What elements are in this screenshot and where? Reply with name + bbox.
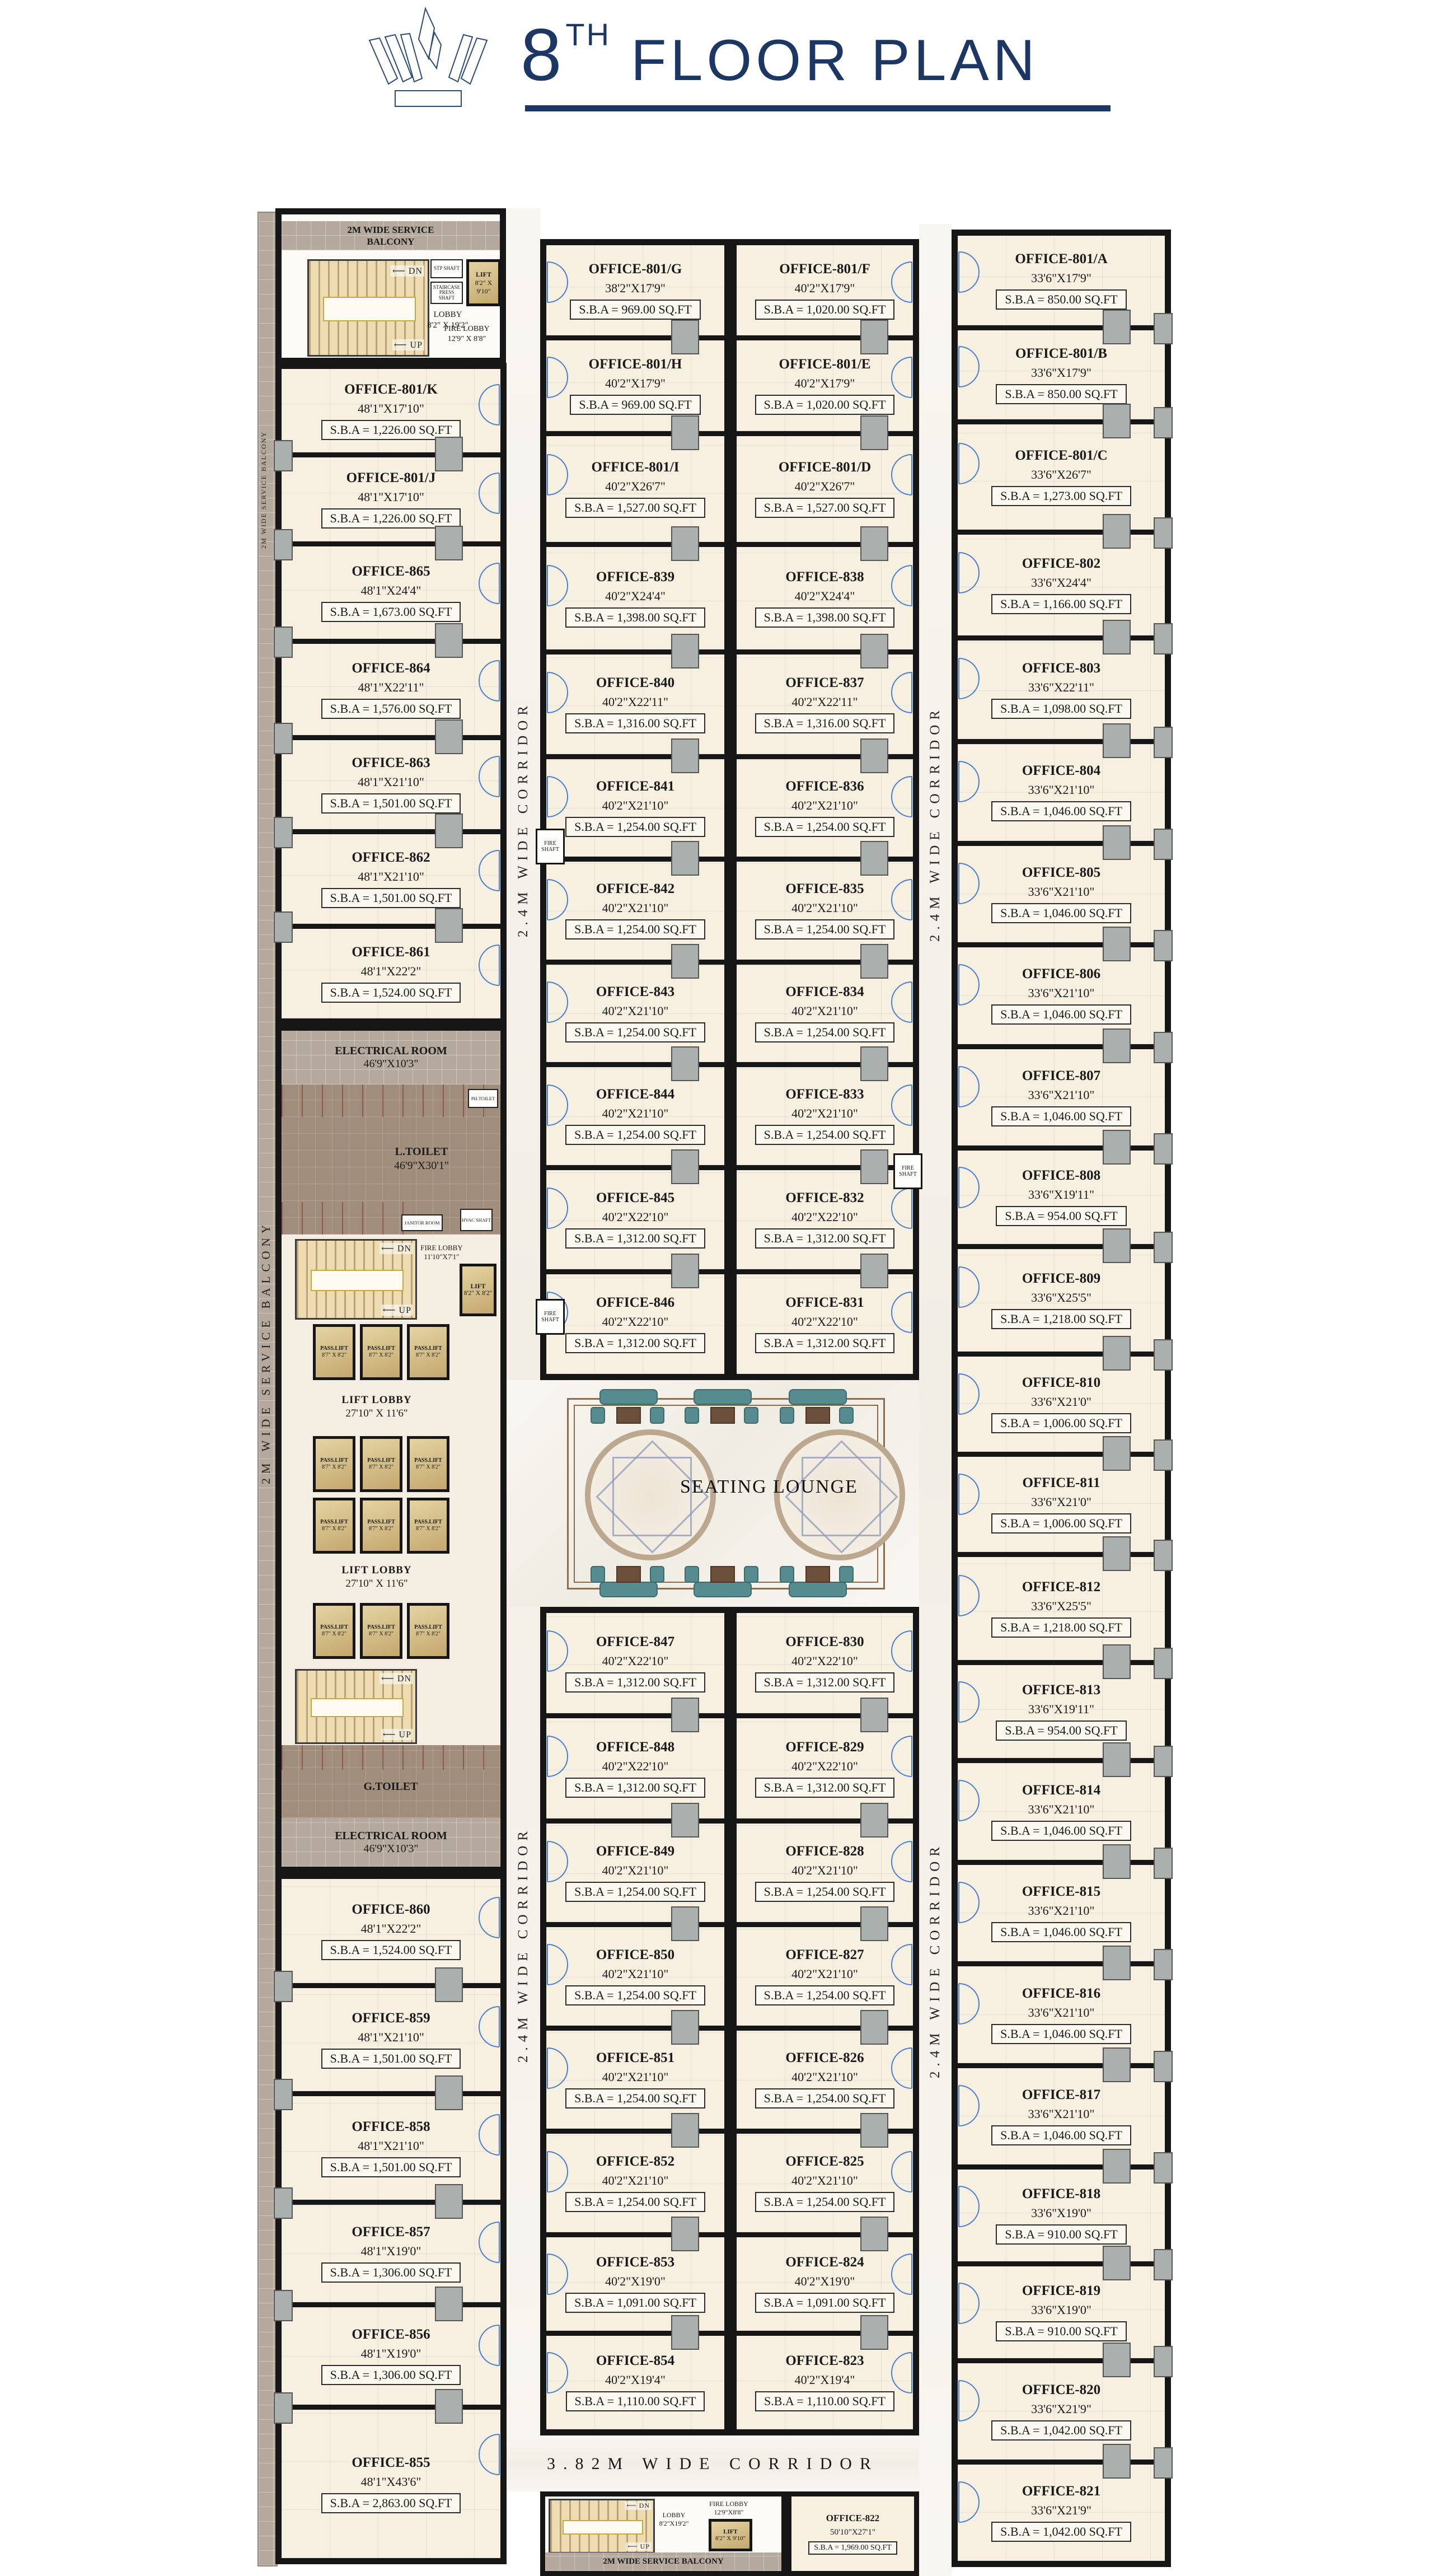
- sofa-cluster: [591, 1389, 664, 1438]
- office-sba: S.B.A = 1,254.00 SQ.FT: [755, 2088, 895, 2109]
- lobby-text: LOBBY: [423, 310, 473, 320]
- office-name: OFFICE-815: [1022, 1884, 1100, 1900]
- office-sba: S.B.A = 1,254.00 SQ.FT: [565, 2088, 705, 2109]
- office-dims: 40'2"X22'11": [792, 695, 858, 709]
- door-icon: [544, 2148, 568, 2196]
- pass-lift-label: PASS.LIFT: [320, 1624, 348, 1631]
- office-cell-office-801-f: OFFICE-801/F40'2"X17'9"S.B.A = 1,020.00 …: [737, 245, 913, 340]
- door-icon: [955, 1470, 980, 1518]
- office-sba: S.B.A = 1,306.00 SQ.FT: [321, 2262, 461, 2283]
- office-name: OFFICE-844: [596, 1087, 674, 1102]
- door-icon: [955, 2478, 980, 2526]
- door-icon: [955, 1263, 980, 1311]
- outer-wall-pier: [1154, 1133, 1173, 1165]
- office-sba: S.B.A = 1,316.00 SQ.FT: [565, 713, 705, 733]
- office-sba: S.B.A = 2,863.00 SQ.FT: [321, 2493, 461, 2513]
- top-service-balcony-label: 2M WIDE SERVICE BALCONY: [324, 224, 458, 248]
- office-sba: S.B.A = 1,046.00 SQ.FT: [991, 1106, 1131, 1126]
- pass-lift-label: PASS.LIFT: [414, 1624, 442, 1631]
- office-cell-office-801-e: OFFICE-801/E40'2"X17'9"S.B.A = 1,020.00 …: [737, 340, 913, 436]
- pass-lift-dims: 8'7" X 8'2": [322, 1464, 346, 1471]
- door-icon: [479, 657, 503, 705]
- office-sba: S.B.A = 1,254.00 SQ.FT: [565, 1022, 705, 1042]
- pass-lift: PASS.LIFT8'7" X 8'2": [360, 1324, 402, 1380]
- door-icon: [891, 668, 916, 717]
- wall-pier: [1103, 2149, 1131, 2184]
- wall-pier: [671, 2315, 699, 2350]
- pass-lift-dims: 8'7" X 8'2": [369, 1631, 393, 1638]
- wall-pier: [1103, 310, 1131, 344]
- office-cell-office-856: OFFICE-85648'1"X19'0"S.B.A = 1,306.00 SQ…: [282, 2307, 500, 2410]
- office-dims: 33'6"X25'5": [1031, 1291, 1091, 1305]
- office-dims: 48'1"X22'2": [361, 1922, 421, 1936]
- office-sba: S.B.A = 1,166.00 SQ.FT: [991, 594, 1131, 614]
- office-name: OFFICE-819: [1022, 2283, 1100, 2299]
- office-cell-office-847: OFFICE-84740'2"X22'10"S.B.A = 1,312.00 S…: [546, 1613, 724, 1718]
- wall-pier: [860, 944, 888, 979]
- armchair: [685, 1566, 699, 1583]
- pass-lift-row-lower: PASS.LIFT8'7" X 8'2"PASS.LIFT8'7" X 8'2"…: [313, 1603, 451, 1662]
- office-name: OFFICE-840: [596, 675, 674, 691]
- office-sba: S.B.A = 1,254.00 SQ.FT: [755, 1985, 895, 2005]
- armchair: [780, 1566, 794, 1583]
- office-cell-office-852: OFFICE-85240'2"X21'10"S.B.A = 1,254.00 S…: [546, 2134, 724, 2237]
- office-cell-office-801-a: OFFICE-801/A33'6"X17'9"S.B.A = 850.00 SQ…: [958, 236, 1165, 330]
- wall-pier: [860, 841, 888, 876]
- pass-lift-dims: 8'7" X 8'2": [416, 1631, 441, 1638]
- title-floor-suffix: TH: [565, 17, 611, 52]
- office-cell-office-849: OFFICE-84940'2"X21'10"S.B.A = 1,254.00 S…: [546, 1824, 724, 1927]
- office-dims: 33'6"X21'0": [1031, 1495, 1091, 1509]
- office-name: OFFICE-825: [785, 2154, 864, 2170]
- door-icon: [955, 1980, 980, 2028]
- office-sba: S.B.A = 1,501.00 SQ.FT: [321, 2049, 461, 2069]
- door-icon: [955, 1063, 980, 1111]
- office-sba: S.B.A = 1,254.00 SQ.FT: [565, 817, 705, 837]
- office-dims: 48'1"X24'4": [361, 583, 421, 598]
- door-icon: [479, 847, 503, 895]
- door-icon: [891, 353, 916, 401]
- wall-pier: [860, 1254, 888, 1288]
- door-icon: [891, 1732, 916, 1780]
- wall-pier: [1103, 1436, 1131, 1471]
- office-cell-office-835: OFFICE-83540'2"X21'10"S.B.A = 1,254.00 S…: [737, 862, 913, 964]
- office-name: OFFICE-836: [785, 779, 864, 794]
- office-name: OFFICE-858: [352, 2119, 430, 2135]
- fire-lobby-label-bottom: FIRE LOBBY 12'9"X8'8": [695, 2500, 762, 2517]
- office-cell-office-805: OFFICE-80533'6"X21'10"S.B.A = 1,046.00 S…: [958, 846, 1165, 948]
- office-dims: 33'6"X21'10": [1028, 2005, 1095, 2020]
- outer-wall-pier: [274, 2392, 293, 2424]
- office-cell-office-862: OFFICE-86248'1"X21'10"S.B.A = 1,501.00 S…: [282, 834, 500, 928]
- pass-lift-dims: 8'7" X 8'2": [322, 1631, 346, 1638]
- lift-dims: 8'2" X 9'10": [469, 279, 498, 296]
- office-dims: 33'6"X21'10": [1028, 2107, 1095, 2121]
- seating-lounge-label: SEATING LOUNGE: [680, 1476, 858, 1498]
- office-cell-office-816: OFFICE-81633'6"X21'10"S.B.A = 1,046.00 S…: [958, 1966, 1165, 2068]
- wall-pier: [1103, 2343, 1131, 2377]
- office-dims: 33'6"X26'7": [1031, 467, 1091, 482]
- pass-lift: PASS.LIFT8'7" X 8'2": [360, 1498, 402, 1554]
- outer-wall-pier: [1154, 1032, 1173, 1063]
- outer-wall-pier: [1154, 623, 1173, 654]
- pass-lift: PASS.LIFT8'7" X 8'2": [407, 1324, 449, 1380]
- fire-shaft-box-2: FIRE SHAFT: [536, 1299, 565, 1335]
- pass-lift-dims: 8'7" X 8'2": [416, 1526, 441, 1532]
- door-icon: [891, 2250, 916, 2298]
- door-icon: [479, 381, 503, 429]
- office-sba: S.B.A = 1,312.00 SQ.FT: [755, 1333, 895, 1353]
- office-name: OFFICE-801/B: [1015, 346, 1107, 362]
- office-sba: S.B.A = 1,312.00 SQ.FT: [755, 1228, 895, 1249]
- office-dims: 33'6"X25'5": [1031, 1599, 1091, 1614]
- sofa-cluster: [591, 1548, 664, 1597]
- office-sba: S.B.A = 1,042.00 SQ.FT: [991, 2420, 1131, 2441]
- bottom-service-balcony-label: 2M WIDE SERVICE BALCONY: [603, 2557, 723, 2566]
- wall-pier: [671, 1803, 699, 1838]
- office-dims: 40'2"X21'10": [791, 2070, 858, 2084]
- coffee-table: [805, 1566, 830, 1583]
- outer-wall-pier: [274, 440, 293, 471]
- outer-wall-pier: [1154, 1949, 1173, 1980]
- office-cell-office-801-b: OFFICE-801/B33'6"X17'9"S.B.A = 850.00 SQ…: [958, 330, 1165, 425]
- office-sba: S.B.A = 1,254.00 SQ.FT: [755, 1022, 895, 1042]
- door-icon: [479, 2430, 503, 2479]
- office-dims: 33'6"X21'0": [1031, 1395, 1091, 1409]
- office-dims: 48'1"X17'10": [358, 401, 424, 416]
- office-name: OFFICE-823: [785, 2353, 864, 2369]
- outer-wall-pier: [1154, 407, 1173, 438]
- seating-lounge: SEATING LOUNGE: [507, 1380, 919, 1607]
- office-cell-office-833: OFFICE-83340'2"X21'10"S.B.A = 1,254.00 S…: [737, 1067, 913, 1170]
- door-icon: [544, 1732, 568, 1780]
- door-icon: [891, 2044, 916, 2092]
- office-cell-office-850: OFFICE-85040'2"X21'10"S.B.A = 1,254.00 S…: [546, 1927, 724, 2031]
- door-icon: [479, 752, 503, 801]
- left-corridor-label-top: 2.4M WIDE CORRIDOR: [516, 701, 531, 937]
- office-name: OFFICE-833: [785, 1087, 864, 1102]
- door-icon: [891, 1941, 916, 1989]
- office-cell-office-812: OFFICE-81233'6"X25'5"S.B.A = 1,218.00 SQ…: [958, 1557, 1165, 1665]
- pass-lift-label: PASS.LIFT: [414, 1457, 442, 1464]
- office-cell-office-838: OFFICE-83840'2"X24'4"S.B.A = 1,398.00 SQ…: [737, 547, 913, 654]
- office-column-mid_right_top: OFFICE-801/F40'2"X17'9"S.B.A = 1,020.00 …: [730, 239, 919, 1380]
- office-dims: 40'2"X22'10": [791, 1315, 858, 1329]
- office-sba: S.B.A = 1,306.00 SQ.FT: [321, 2365, 461, 2385]
- office-dims: 33'6"X24'4": [1031, 576, 1091, 590]
- stair-landing: [323, 297, 415, 321]
- office-cell-office-844: OFFICE-84440'2"X21'10"S.B.A = 1,254.00 S…: [546, 1067, 724, 1170]
- office-cell-office-804: OFFICE-80433'6"X21'10"S.B.A = 1,046.00 S…: [958, 744, 1165, 846]
- office-cell-office-814: OFFICE-81433'6"X21'10"S.B.A = 1,046.00 S…: [958, 1763, 1165, 1865]
- lift-top: LIFT 8'2" X 9'10": [466, 259, 501, 306]
- office-name: OFFICE-829: [785, 1740, 864, 1755]
- pass-lift-label: PASS.LIFT: [320, 1345, 348, 1352]
- office-sba: S.B.A = 1,254.00 SQ.FT: [755, 1882, 895, 1902]
- office-sba: S.B.A = 1,501.00 SQ.FT: [321, 793, 461, 814]
- left-corridor-label-bottom: 2.4M WIDE CORRIDOR: [516, 1826, 531, 2063]
- staircase-press-shaft: STAIRCASE PRESS SHAFT: [430, 282, 463, 304]
- office-column-left_top: OFFICE-801/K48'1"X17'10"S.B.A = 1,226.00…: [275, 363, 507, 1025]
- office-dims: 40'2"X22'10": [602, 1759, 669, 1774]
- office-dims: 40'2"X17'9": [795, 281, 855, 296]
- door-icon: [544, 668, 568, 717]
- bottom-core: ⟵ DN ⟵ UP LOBBY 8'2"X19'2" FIRE LOBBY 12…: [540, 2491, 786, 2576]
- office-sba: S.B.A = 1,091.00 SQ.FT: [565, 2293, 705, 2313]
- pass-lift: PASS.LIFT8'7" X 8'2": [407, 1603, 449, 1659]
- door-icon: [955, 961, 980, 1009]
- office-sba: S.B.A = 1,006.00 SQ.FT: [991, 1513, 1131, 1534]
- wall-pier: [1103, 1644, 1131, 1679]
- office-cell-office-837: OFFICE-83740'2"X22'11"S.B.A = 1,316.00 S…: [737, 654, 913, 759]
- wall-pier: [1103, 404, 1131, 438]
- wall-pier: [860, 2010, 888, 2045]
- office-sba: S.B.A = 1,969.00 SQ.FT: [808, 2541, 897, 2555]
- outer-wall-pier: [1154, 2346, 1173, 2377]
- wall-pier: [1103, 1336, 1131, 1371]
- office-cell-office-848: OFFICE-84840'2"X22'10"S.B.A = 1,312.00 S…: [546, 1718, 724, 1824]
- service-balcony-label-left-vertical: 2M WIDE SERVICE BALCONY: [259, 1221, 273, 1484]
- pass-lift-label: PASS.LIFT: [367, 1519, 395, 1526]
- wall-pier: [671, 320, 699, 354]
- office-sba: S.B.A = 1,316.00 SQ.FT: [755, 713, 895, 733]
- office-sba: S.B.A = 1,312.00 SQ.FT: [565, 1778, 705, 1798]
- office-dims: 40'2"X22'10": [602, 1210, 669, 1224]
- office-dims: 40'2"X21'10": [602, 1106, 669, 1121]
- bottom-corridor: 3.82M WIDE CORRIDOR: [507, 2435, 919, 2491]
- office-cell-office-846: OFFICE-84640'2"X22'10"S.B.A = 1,312.00 S…: [546, 1274, 724, 1374]
- office-name: OFFICE-809: [1022, 1271, 1100, 1287]
- wall-pier: [860, 2217, 888, 2251]
- wall-pier: [671, 1254, 699, 1288]
- office-cell-office-861: OFFICE-86148'1"X22'2"S.B.A = 1,524.00 SQ…: [282, 929, 500, 1018]
- wall-pier: [1103, 514, 1131, 549]
- office-name: OFFICE-807: [1022, 1068, 1100, 1084]
- wall-pier: [671, 2113, 699, 2148]
- pass-lift-dims: 8'7" X 8'2": [322, 1526, 346, 1532]
- office-dims: 33'6"X17'9": [1031, 271, 1091, 286]
- office-name: OFFICE-846: [596, 1295, 674, 1311]
- right-corridor: 2.4M WIDE CORRIDOR 2.4M WIDE CORRIDOR FI…: [919, 224, 952, 2576]
- office-dims: 40'2"X26'7": [795, 479, 855, 494]
- office-name: OFFICE-801/I: [592, 460, 680, 475]
- door-icon: [891, 1288, 916, 1336]
- pass-lift-dims: 8'7" X 8'2": [416, 1464, 441, 1471]
- ladies-toilet-label: L.TOILET 46'9"X30'1": [366, 1145, 477, 1173]
- outer-wall-pier: [1154, 930, 1173, 961]
- core-stair-row-upper: ⟵ DN ⟵ UP FIRE LOBBY 11'10"X7'1" LIFT 8'…: [282, 1235, 500, 1322]
- office-cell-office-801-i: OFFICE-801/I40'2"X26'7"S.B.A = 1,527.00 …: [546, 436, 724, 548]
- door-icon: [955, 1370, 980, 1418]
- office-sba: S.B.A = 954.00 SQ.FT: [996, 1206, 1126, 1226]
- office-dims: 40'2"X22'10": [791, 1759, 858, 1774]
- office-cell-office-801-d: OFFICE-801/D40'2"X26'7"S.B.A = 1,527.00 …: [737, 436, 913, 548]
- office-cell-office-830: OFFICE-83040'2"X22'10"S.B.A = 1,312.00 S…: [737, 1613, 913, 1718]
- armchair: [591, 1407, 605, 1424]
- wall-pier: [860, 526, 888, 561]
- office-name: OFFICE-828: [785, 1844, 864, 1859]
- pass-lift-label: PASS.LIFT: [320, 1457, 348, 1464]
- door-icon: [891, 2349, 916, 2397]
- outer-wall-pier: [274, 911, 293, 943]
- right-corridor-label-bottom: 2.4M WIDE CORRIDOR: [927, 1842, 943, 2078]
- door-icon: [479, 941, 503, 989]
- office-sba: S.B.A = 1,673.00 SQ.FT: [321, 602, 461, 622]
- coffee-table: [710, 1566, 735, 1583]
- office-sba: S.B.A = 1,006.00 SQ.FT: [991, 1413, 1131, 1433]
- lobby-label-bottom: LOBBY 8'2"X19'2": [653, 2511, 695, 2528]
- office-name: OFFICE-837: [785, 675, 864, 691]
- office-cell-office-857: OFFICE-85748'1"X19'0"S.B.A = 1,306.00 SQ…: [282, 2205, 500, 2307]
- gents-toilet: G.TOILET: [282, 1745, 500, 1818]
- outer-wall-pier: [274, 723, 293, 754]
- office-sba: S.B.A = 1,046.00 SQ.FT: [991, 903, 1131, 923]
- office-name: OFFICE-801/C: [1015, 448, 1107, 464]
- office-name: OFFICE-831: [785, 1295, 864, 1311]
- office-name: OFFICE-861: [352, 945, 430, 960]
- door-icon: [955, 859, 980, 908]
- office-column-left_bottom: OFFICE-86048'1"X22'2"S.B.A = 1,524.00 SQ…: [275, 1873, 507, 2564]
- wall-pier: [860, 1149, 888, 1184]
- wall-pier: [435, 719, 463, 754]
- office-name: OFFICE-801/F: [779, 261, 870, 277]
- stairs-up-label: ⟵ UP: [392, 339, 424, 350]
- office-name: OFFICE-816: [1022, 1986, 1100, 2002]
- pass-lift: PASS.LIFT8'7" X 8'2": [313, 1498, 355, 1554]
- outer-wall-pier: [1154, 1232, 1173, 1263]
- office-dims: 40'2"X21'10": [602, 798, 669, 813]
- outer-wall-pier: [1154, 829, 1173, 860]
- office-sba: S.B.A = 1,046.00 SQ.FT: [991, 1821, 1131, 1841]
- fire-lobby-label-mid: FIRE LOBBY 11'10"X7'1": [416, 1243, 467, 1262]
- pass-lift-dims: 8'7" X 8'2": [369, 1464, 393, 1471]
- wall-pier: [1103, 723, 1131, 758]
- fire-lobby-dims: 12'9" X 8'8": [432, 334, 502, 344]
- office-name: OFFICE-859: [352, 2011, 430, 2026]
- fire-shaft-box-1: FIRE SHAFT: [536, 829, 565, 864]
- office-name: OFFICE-824: [785, 2255, 864, 2270]
- office-name: OFFICE-801/G: [589, 261, 682, 277]
- door-icon: [544, 1184, 568, 1232]
- wall-pier: [671, 526, 699, 561]
- outer-wall-pier: [1154, 2447, 1173, 2479]
- door-icon: [544, 1627, 568, 1675]
- office-dims: 33'6"X21'10": [1028, 1904, 1095, 1918]
- office-cell-office-855: OFFICE-85548'1"X43'6"S.B.A = 2,863.00 SQ…: [282, 2410, 500, 2558]
- office-sba: S.B.A = 1,501.00 SQ.FT: [321, 888, 461, 908]
- office-name: OFFICE-806: [1022, 966, 1100, 982]
- electrical-room-upper: ELECTRICAL ROOM 46'9"X10'3": [282, 1031, 500, 1084]
- office-sba: S.B.A = 954.00 SQ.FT: [996, 1721, 1126, 1741]
- wall-pier: [860, 1698, 888, 1732]
- sofa: [694, 1389, 752, 1405]
- office-cell-office-839: OFFICE-83940'2"X24'4"S.B.A = 1,398.00 SQ…: [546, 547, 724, 654]
- wall-pier: [671, 1906, 699, 1941]
- sofa-cluster: [780, 1548, 854, 1597]
- armchair: [744, 1407, 758, 1424]
- office-name: OFFICE-865: [352, 564, 430, 579]
- wall-pier: [1103, 2444, 1131, 2479]
- office-sba: S.B.A = 1,398.00 SQ.FT: [565, 607, 705, 628]
- office-cell-office-802: OFFICE-80233'6"X24'4"S.B.A = 1,166.00 SQ…: [958, 535, 1165, 641]
- lift-mid: LIFT 8'2" X 8'2": [460, 1264, 496, 1316]
- office-dims: 50'10"X27'1": [830, 2528, 875, 2537]
- pass-lift: PASS.LIFT8'7" X 8'2": [407, 1498, 449, 1554]
- wall-pier: [435, 437, 463, 471]
- ph-toilet-label: PH.TOILET: [468, 1089, 498, 1108]
- outer-wall-pier: [274, 529, 293, 560]
- office-name: OFFICE-839: [596, 569, 674, 585]
- door-icon: [891, 2148, 916, 2196]
- office-name: OFFICE-801/J: [346, 470, 436, 486]
- door-icon: [955, 1678, 980, 1726]
- staircase-mid-lower: ⟵ DN ⟵ UP: [295, 1669, 417, 1744]
- office-cell-office-853: OFFICE-85340'2"X19'0"S.B.A = 1,091.00 SQ…: [546, 2237, 724, 2335]
- wall-pier: [1103, 1946, 1131, 1980]
- office-name: OFFICE-830: [785, 1634, 864, 1650]
- office-cell-office-821: OFFICE-82133'6"X21'9"S.B.A = 1,042.00 SQ…: [958, 2465, 1165, 2561]
- office-sba: S.B.A = 910.00 SQ.FT: [996, 2224, 1126, 2245]
- wall-pier: [1103, 1130, 1131, 1165]
- office-cell-office-842: OFFICE-84240'2"X21'10"S.B.A = 1,254.00 S…: [546, 862, 724, 964]
- office-cell-office-801-h: OFFICE-801/H40'2"X17'9"S.B.A = 969.00 SQ…: [546, 340, 724, 436]
- pass-lift-label: PASS.LIFT: [367, 1457, 395, 1464]
- wall-pier: [1103, 825, 1131, 860]
- office-dims: 33'6"X21'9": [1031, 2503, 1091, 2518]
- office-cell-office-819: OFFICE-81933'6"X19'0"S.B.A = 910.00 SQ.F…: [958, 2266, 1165, 2363]
- office-dims: 40'2"X19'4": [605, 2373, 666, 2387]
- wall-pier: [1103, 2246, 1131, 2280]
- electrical-room-lower: ELECTRICAL ROOM 46'9"X10'3": [282, 1818, 500, 1867]
- office-sba: S.B.A = 969.00 SQ.FT: [570, 395, 700, 415]
- office-name: OFFICE-827: [785, 1947, 864, 1963]
- office-dims: 33'6"X21'10": [1028, 1802, 1095, 1817]
- office-name: OFFICE-860: [352, 1902, 430, 1918]
- ladies-toilet: L.TOILET 46'9"X30'1" PH.TOILET JANITOR R…: [282, 1084, 500, 1235]
- office-sba: S.B.A = 1,273.00 SQ.FT: [991, 486, 1131, 506]
- armchair: [591, 1566, 605, 1583]
- door-icon: [544, 2349, 568, 2397]
- pass-lift: PASS.LIFT8'7" X 8'2": [313, 1324, 355, 1380]
- office-name: OFFICE-835: [785, 881, 864, 897]
- title-underline: [525, 105, 1111, 111]
- wall-pier: [671, 415, 699, 450]
- wall-pier: [860, 320, 888, 354]
- staircase-top: ⟵ DN ⟵ UP: [307, 259, 429, 357]
- office-name: OFFICE-821: [1022, 2484, 1100, 2499]
- office-sba: S.B.A = 1,312.00 SQ.FT: [565, 1228, 705, 1249]
- office-cell-office-836: OFFICE-83640'2"X21'10"S.B.A = 1,254.00 S…: [737, 759, 913, 862]
- door-icon: [544, 562, 568, 610]
- office-sba: S.B.A = 1,110.00 SQ.FT: [566, 2391, 705, 2411]
- office-dims: 40'2"X22'10": [791, 1210, 858, 1224]
- door-icon: [955, 549, 980, 597]
- pass-lift: PASS.LIFT8'7" X 8'2": [313, 1603, 355, 1659]
- pass-lift-label: PASS.LIFT: [367, 1624, 395, 1631]
- office-cell-office-863: OFFICE-86348'1"X21'10"S.B.A = 1,501.00 S…: [282, 740, 500, 834]
- office-sba: S.B.A = 1,218.00 SQ.FT: [991, 1617, 1131, 1638]
- office-sba: S.B.A = 1,312.00 SQ.FT: [755, 1672, 895, 1693]
- office-dims: 33'6"X21'9": [1031, 2402, 1091, 2416]
- hvac-shaft-label: HVAC SHAFT: [460, 1209, 493, 1231]
- bottom-corridor-label: 3.82M WIDE CORRIDOR: [507, 2453, 919, 2475]
- office-cell-office-803: OFFICE-80333'6"X22'11"S.B.A = 1,098.00 S…: [958, 641, 1165, 744]
- door-icon: [955, 1878, 980, 1927]
- office-dims: 40'2"X22'11": [602, 695, 668, 709]
- wall-pier: [435, 1967, 463, 2002]
- office-name: OFFICE-801/D: [779, 460, 871, 475]
- office-dims: 48'1"X21'10": [358, 869, 424, 884]
